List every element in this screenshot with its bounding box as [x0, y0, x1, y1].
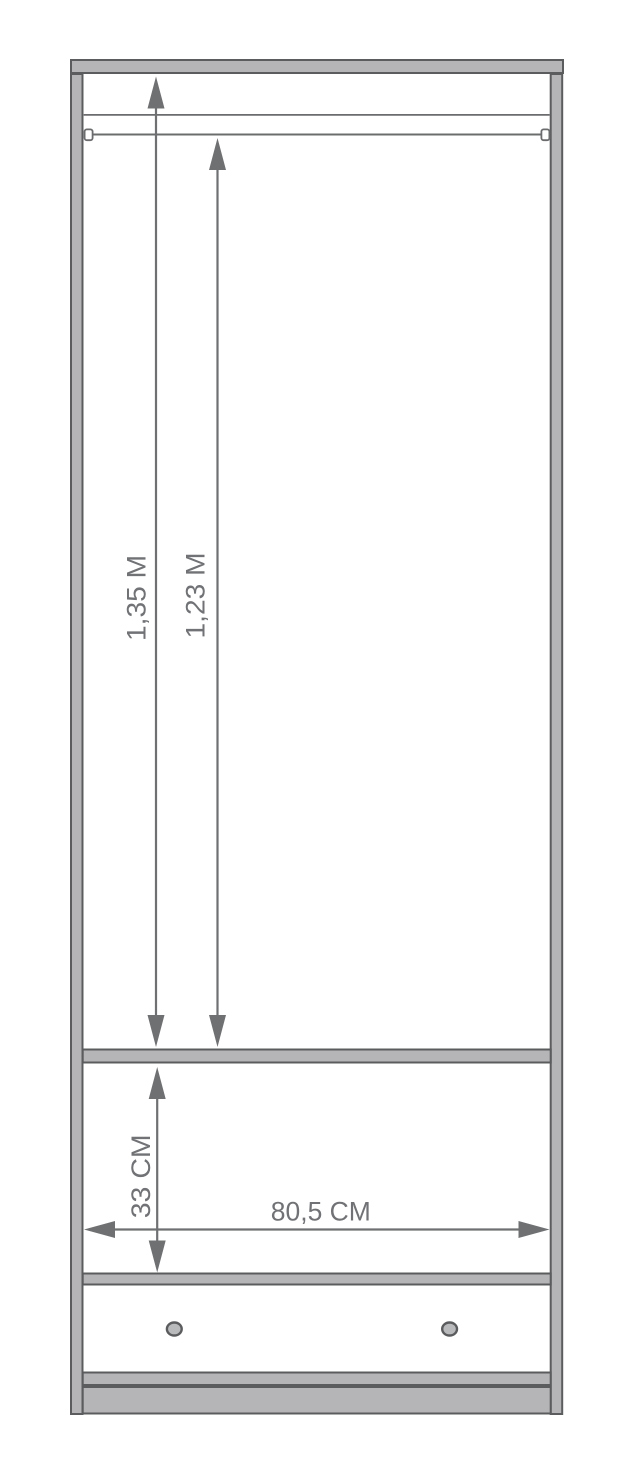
svg-text:1,23 M: 1,23 M — [181, 553, 211, 639]
svg-text:80,5 CM: 80,5 CM — [271, 1197, 371, 1227]
svg-text:33 CM: 33 CM — [126, 1134, 156, 1218]
svg-text:1,35 M: 1,35 M — [121, 555, 151, 641]
